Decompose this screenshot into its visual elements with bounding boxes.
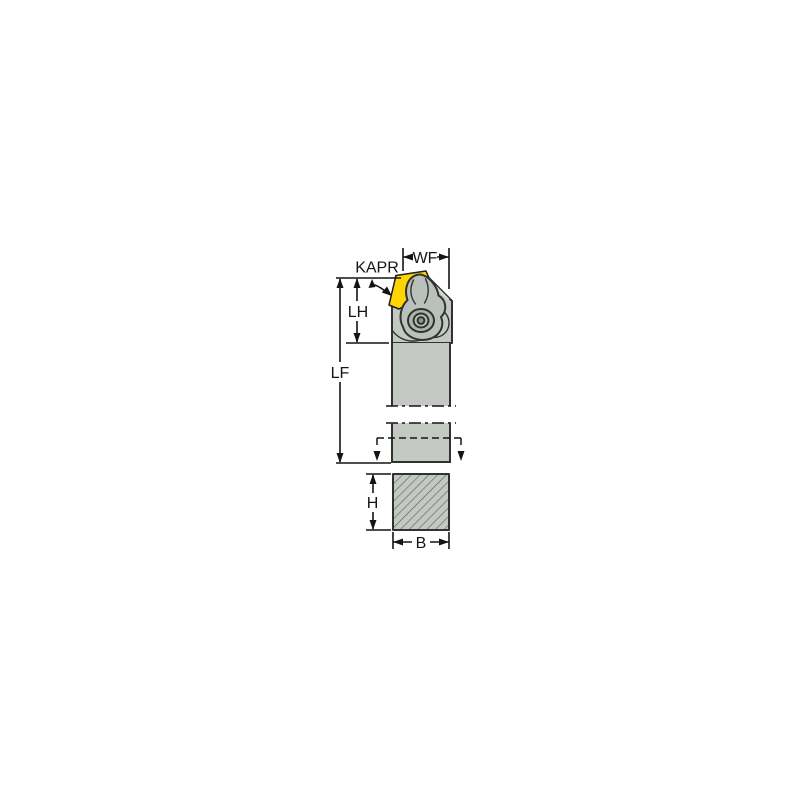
tool-side-view bbox=[386, 271, 456, 462]
h-arrow-bottom bbox=[370, 520, 377, 530]
b-label: B bbox=[416, 535, 427, 552]
lh-arrow-top bbox=[354, 278, 361, 288]
wf-arrow-right bbox=[439, 254, 449, 261]
clamp-screw-socket bbox=[418, 317, 425, 324]
ref-plane-arrow-left bbox=[374, 451, 381, 461]
tool-holder-dimension-drawing: LF LH KAPR WF bbox=[0, 0, 800, 800]
kapr-arrow-edge bbox=[382, 287, 392, 297]
shank-cross-section bbox=[393, 474, 449, 530]
lh-label: LH bbox=[348, 304, 368, 321]
b-arrow-left bbox=[393, 539, 403, 546]
kapr-label: KAPR bbox=[355, 260, 399, 277]
lf-arrow-bottom bbox=[337, 453, 344, 463]
shank-upper bbox=[392, 343, 450, 406]
h-label: H bbox=[367, 495, 379, 512]
lh-arrow-bottom bbox=[354, 333, 361, 343]
drawing-canvas: LF LH KAPR WF bbox=[0, 0, 800, 800]
wf-arrow-left bbox=[403, 254, 413, 261]
h-arrow-top bbox=[370, 474, 377, 484]
shank-lower bbox=[392, 423, 450, 462]
ref-plane-arrow-right bbox=[458, 451, 465, 461]
lf-arrow-top bbox=[337, 278, 344, 288]
kapr-arrow-top bbox=[369, 279, 376, 288]
cross-section-hatching bbox=[393, 474, 449, 530]
b-arrow-right bbox=[439, 539, 449, 546]
lf-label: LF bbox=[331, 365, 350, 382]
wf-label: WF bbox=[413, 250, 438, 267]
